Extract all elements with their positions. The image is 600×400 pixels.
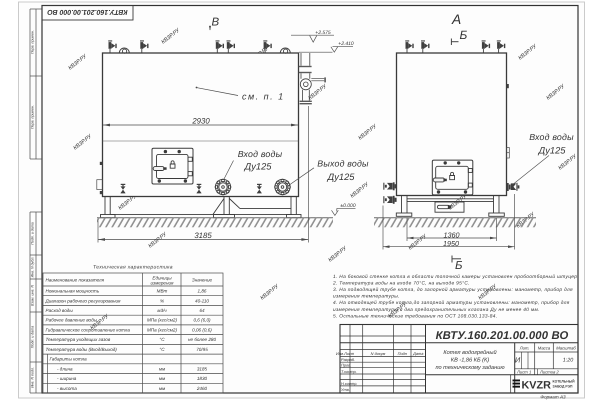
svg-text:В: В xyxy=(212,17,220,29)
svg-text:Пров.: Пров. xyxy=(341,363,351,368)
svg-text:Гидравлическое сопротивление к: Гидравлическое сопротивление котла xyxy=(46,327,131,332)
svg-text:МВт: МВт xyxy=(157,289,168,294)
svg-text:Б: Б xyxy=(455,260,463,272)
svg-text:+2.575: +2.575 xyxy=(315,30,331,36)
svg-text:Формат А3: Формат А3 xyxy=(540,395,566,400)
svg-text:Диапазон рабочего регулировани: Диапазон рабочего регулирования xyxy=(45,298,122,303)
svg-text:Изм.Лист: Изм.Лист xyxy=(336,351,355,356)
svg-text:1,86: 1,86 xyxy=(198,289,207,294)
svg-text:Подп: Подп xyxy=(398,351,408,356)
svg-text:измерения температуры.: измерения температуры. xyxy=(333,295,400,300)
svg-text:Дата: Дата xyxy=(412,351,424,356)
svg-text:Т.контр.: Т.контр. xyxy=(341,369,357,374)
svg-text:64: 64 xyxy=(199,308,205,313)
svg-text:Выход воды: Выход воды xyxy=(317,159,369,169)
svg-text:Лист 1: Лист 1 xyxy=(516,369,531,374)
svg-text:5. Остальные технические треб: 5. Остальные технические требования по О… xyxy=(333,314,497,320)
svg-text:2930: 2930 xyxy=(191,117,210,126)
svg-text:Масштаб: Масштаб xyxy=(556,345,576,350)
svg-text:Разраб.: Разраб. xyxy=(341,357,355,362)
svg-text:КВ -1,86 КБ (К): КВ -1,86 КБ (К) xyxy=(451,357,490,364)
svg-text:Вход воды: Вход воды xyxy=(238,149,283,159)
svg-text:КВТУ.160.201.00.000 ВО: КВТУ.160.201.00.000 ВО xyxy=(436,330,569,342)
svg-text:Наименование показателя: Наименование показателя xyxy=(46,278,105,283)
svg-text:см. п. 1: см. п. 1 xyxy=(242,92,285,102)
svg-text:не более 280: не более 280 xyxy=(188,337,216,342)
svg-text:0,06 (0,6): 0,06 (0,6) xyxy=(192,327,212,332)
svg-text:Подп. и дата: Подп. и дата xyxy=(31,222,35,245)
svg-text:по техническому заданию: по техническому заданию xyxy=(435,364,505,371)
svg-text:Котел водогрейный: Котел водогрейный xyxy=(443,349,496,356)
svg-text:3185: 3185 xyxy=(194,231,212,240)
svg-text:КВТУ.160.201.00.000 ВО: КВТУ.160.201.00.000 ВО xyxy=(47,8,128,15)
svg-text:40-110: 40-110 xyxy=(195,298,209,303)
svg-text:Номинальная мощность: Номинальная мощность xyxy=(46,289,100,294)
svg-text:Ду125: Ду125 xyxy=(244,162,273,172)
svg-text:Расход воды: Расход воды xyxy=(46,308,74,313)
svg-text:Вход воды: Вход воды xyxy=(529,132,574,142)
svg-text:Утв.: Утв. xyxy=(341,387,350,392)
svg-text:И: И xyxy=(515,356,521,365)
svg-text:N докум: N докум xyxy=(371,351,386,356)
svg-text:измерения: измерения xyxy=(151,281,175,286)
svg-text:КОТЕЛЬНЫЙ: КОТЕЛЬНЫЙ xyxy=(553,379,576,384)
svg-text:Перв. примен.: Перв. примен. xyxy=(31,30,35,54)
svg-text:1830: 1830 xyxy=(197,376,208,381)
svg-text:Значение: Значение xyxy=(192,278,213,283)
svg-text:°С: °С xyxy=(159,347,165,352)
svg-text:Перв. примен.: Перв. примен. xyxy=(31,105,35,129)
svg-text:ЗАВОД РЭП: ЗАВОД РЭП xyxy=(553,384,574,388)
svg-text:- высота: - высота xyxy=(57,386,77,391)
svg-text:Взам. инв. N: Взам. инв. N xyxy=(31,285,35,306)
svg-text:1360: 1360 xyxy=(444,230,460,239)
svg-text:- ширина: - ширина xyxy=(57,376,77,381)
svg-text:Б: Б xyxy=(460,28,468,42)
svg-text:Ду125: Ду125 xyxy=(327,172,356,182)
svg-text:Температура уходящих газов: Температура уходящих газов xyxy=(46,337,111,342)
svg-text:KVZR: KVZR xyxy=(522,380,552,392)
svg-text:3185: 3185 xyxy=(197,366,208,371)
svg-text:70/95: 70/95 xyxy=(196,347,208,352)
svg-text:%: % xyxy=(160,298,164,303)
svg-text:Лит.: Лит. xyxy=(519,345,530,350)
svg-text:1:20: 1:20 xyxy=(563,358,574,364)
svg-text:°С: °С xyxy=(159,337,165,342)
svg-text:±0.000: ±0.000 xyxy=(340,203,355,209)
svg-text:- длина: - длина xyxy=(57,366,73,371)
svg-text:измерения температуры и два пр: измерения температуры и два предохраните… xyxy=(333,307,540,313)
svg-text:2. Температура воды на входе: 2. Температура воды на входе 70°С, на вы… xyxy=(332,280,470,286)
svg-text:3. На подводящей трубе котла,: 3. На подводящей трубе котла, до запорно… xyxy=(333,287,573,293)
svg-text:м3/ч: м3/ч xyxy=(157,308,167,313)
svg-text:мм: мм xyxy=(159,366,166,371)
svg-text:Ду125: Ду125 xyxy=(538,146,567,156)
svg-text:1. На боковой стенке котла в: 1. На боковой стенке котла в области топ… xyxy=(333,274,577,280)
svg-text:4. На отводящей трубе котла,д: 4. На отводящей трубе котла,до запорной … xyxy=(333,300,570,306)
svg-text:Подп. и дата: Подп. и дата xyxy=(31,326,35,349)
svg-text:МПа (кгс/см2): МПа (кгс/см2) xyxy=(147,318,177,323)
svg-text:мм: мм xyxy=(159,386,166,391)
svg-text:МПа (кгс/см2): МПа (кгс/см2) xyxy=(147,327,177,332)
svg-text:Масса: Масса xyxy=(538,345,551,350)
svg-text:мм: мм xyxy=(159,376,166,381)
svg-text:Температура воды (Вход/Выход): Температура воды (Вход/Выход) xyxy=(46,347,118,352)
svg-text:Н.контр.: Н.контр. xyxy=(341,381,357,386)
svg-text:Рабочее давление воды: Рабочее давление воды xyxy=(46,318,98,323)
svg-text:Инв. N дубл.: Инв. N дубл. xyxy=(31,257,35,278)
svg-text:+2.410: +2.410 xyxy=(338,41,354,47)
svg-text:1950: 1950 xyxy=(443,239,459,248)
svg-text:Техническая характеристика: Техническая характеристика xyxy=(93,265,173,271)
svg-text:Инв. N подл.: Инв. N подл. xyxy=(31,367,35,388)
svg-text:Листов 2: Листов 2 xyxy=(539,369,559,374)
svg-text:А: А xyxy=(451,12,461,27)
svg-text:2460: 2460 xyxy=(196,386,208,391)
svg-text:0,6 (6,0): 0,6 (6,0) xyxy=(193,318,211,323)
svg-text:Габариты котла: Габариты котла xyxy=(50,357,88,362)
